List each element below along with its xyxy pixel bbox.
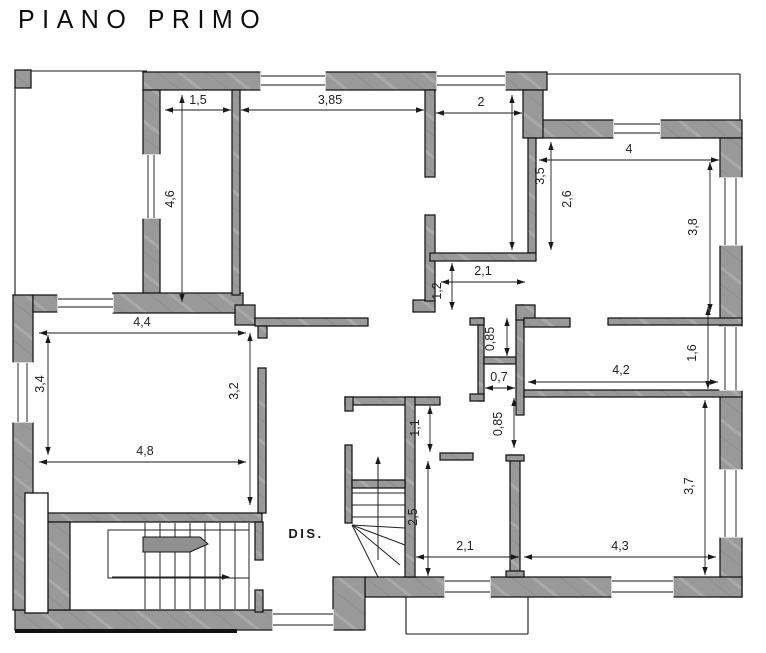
wall — [255, 590, 263, 612]
wall — [516, 305, 524, 415]
wall — [255, 318, 368, 326]
wall — [490, 577, 612, 597]
wall — [345, 445, 352, 523]
dimension-label: 0,85 — [491, 412, 505, 436]
arrowhead — [223, 107, 231, 112]
dimension-label: 2,1 — [474, 264, 491, 278]
wall — [232, 90, 240, 295]
arrowhead — [548, 242, 553, 250]
window-opening — [436, 71, 505, 90]
wall — [523, 90, 543, 138]
wall — [470, 394, 484, 401]
dimension-label: 4,4 — [133, 315, 150, 329]
wall — [258, 368, 266, 513]
window-opening — [719, 177, 742, 245]
wall — [430, 253, 536, 261]
arrowhead — [427, 406, 432, 414]
wall — [524, 390, 742, 397]
wall — [720, 390, 742, 470]
section-line — [15, 629, 237, 633]
arrowhead — [710, 379, 718, 384]
wall — [113, 293, 243, 313]
dimension-label: 4,6 — [163, 190, 177, 207]
wall — [413, 300, 435, 312]
wall — [440, 453, 473, 460]
wall — [470, 318, 484, 325]
wall — [235, 305, 255, 325]
shaft — [25, 493, 48, 613]
dimension-label: 2,6 — [560, 190, 574, 207]
arrowhead — [707, 162, 712, 170]
dimension-label: 3,2 — [227, 382, 241, 399]
arrowhead — [39, 459, 47, 464]
wall — [505, 72, 547, 90]
wall — [608, 318, 742, 325]
stair-landing — [143, 537, 208, 552]
arrowhead — [702, 400, 707, 408]
window-opening — [12, 362, 33, 422]
arrowhead — [507, 385, 515, 390]
arrowhead — [711, 157, 719, 162]
wall — [345, 397, 353, 411]
stair-direction-arrow — [222, 574, 230, 579]
dimension-label: 0,85 — [483, 327, 497, 351]
arrowhead — [539, 157, 547, 162]
dimension-label: 2,5 — [406, 508, 420, 525]
arrowhead — [509, 95, 514, 103]
arrowhead — [514, 110, 522, 115]
dimension-label: 1,1 — [408, 419, 422, 436]
window-opening — [719, 326, 742, 390]
arrowhead — [524, 554, 532, 559]
arrowhead — [509, 242, 514, 250]
arrowhead — [45, 447, 50, 455]
window-opening — [272, 609, 333, 630]
wall — [720, 138, 742, 178]
arrowhead — [528, 379, 536, 384]
window-opening — [444, 576, 490, 597]
arrowhead — [238, 459, 246, 464]
arrowhead — [247, 333, 252, 341]
window-opening — [719, 469, 742, 537]
arrowhead — [708, 554, 716, 559]
wall — [673, 577, 742, 597]
dimension-label: 3,5 — [533, 167, 547, 184]
arrowhead — [548, 142, 553, 150]
arrowhead — [165, 107, 173, 112]
dimension-label: 2 — [478, 95, 485, 109]
wall — [33, 295, 58, 312]
wall — [258, 326, 267, 338]
stair-winder-line — [352, 525, 400, 565]
wall — [143, 90, 160, 155]
wall — [425, 90, 435, 177]
arrowhead — [449, 302, 454, 310]
arrowhead — [39, 330, 47, 335]
dimension-label: 3,85 — [318, 93, 342, 107]
arrowhead — [427, 444, 432, 452]
wall — [506, 571, 524, 577]
dimension-label: 4,3 — [611, 539, 628, 553]
dimension-label: 3,4 — [33, 375, 47, 392]
wall — [143, 218, 160, 295]
arrowhead — [425, 568, 430, 576]
dimension-label: 3,7 — [682, 477, 696, 494]
arrowhead — [517, 279, 525, 284]
stair-winder-line — [352, 525, 378, 577]
wall — [143, 72, 261, 90]
arrowhead — [485, 385, 493, 390]
dimension-label: 3,8 — [686, 218, 700, 235]
arrowhead — [416, 554, 424, 559]
dimension-label: 1,6 — [685, 344, 699, 361]
dimension-label: 2,1 — [456, 539, 473, 553]
wall — [524, 318, 570, 327]
window-opening — [611, 576, 673, 597]
window-opening — [57, 294, 113, 312]
dimension-label: 4 — [626, 142, 633, 156]
window-opening — [142, 154, 160, 218]
wall — [365, 577, 445, 597]
arrowhead — [238, 330, 246, 335]
wall — [660, 120, 742, 138]
arrowhead — [416, 107, 424, 112]
dimension-label: 0,7 — [490, 370, 507, 384]
dimension-label: 4,2 — [612, 363, 629, 377]
room-label-dis: DIS. — [288, 526, 323, 541]
wall — [333, 577, 365, 630]
arrowhead — [504, 318, 509, 326]
arrowhead — [241, 107, 249, 112]
arrowhead — [247, 497, 252, 505]
wall — [325, 72, 437, 90]
stair-direction-arrow — [375, 456, 380, 464]
dimension-label: 4,8 — [136, 444, 153, 458]
arrowhead — [436, 110, 444, 115]
floor-plan-page: PIANO PRIMO 1,53,85242,14,40,74,24,82,14… — [0, 0, 766, 653]
wall — [15, 610, 273, 630]
wall — [33, 513, 262, 522]
wall — [15, 70, 31, 88]
arrowhead — [45, 335, 50, 343]
wall — [255, 522, 263, 560]
arrowhead — [449, 263, 454, 271]
wall — [13, 295, 33, 363]
wall — [345, 397, 440, 405]
arrowhead — [702, 567, 707, 575]
wall — [484, 357, 516, 364]
arrowhead — [705, 381, 710, 389]
arrowhead — [179, 95, 184, 103]
window-opening — [613, 119, 660, 138]
wall — [506, 455, 524, 461]
dimension-label: 1,2 — [430, 282, 444, 299]
arrowhead — [425, 461, 430, 469]
wall — [528, 138, 536, 253]
arrowhead — [504, 348, 509, 356]
window-opening — [260, 71, 325, 90]
wall — [720, 245, 742, 327]
floor-plan: 1,53,85242,14,40,74,24,82,14,34,63,52,63… — [0, 0, 766, 653]
dimension-label: 1,5 — [189, 93, 206, 107]
arrowhead — [511, 440, 516, 448]
